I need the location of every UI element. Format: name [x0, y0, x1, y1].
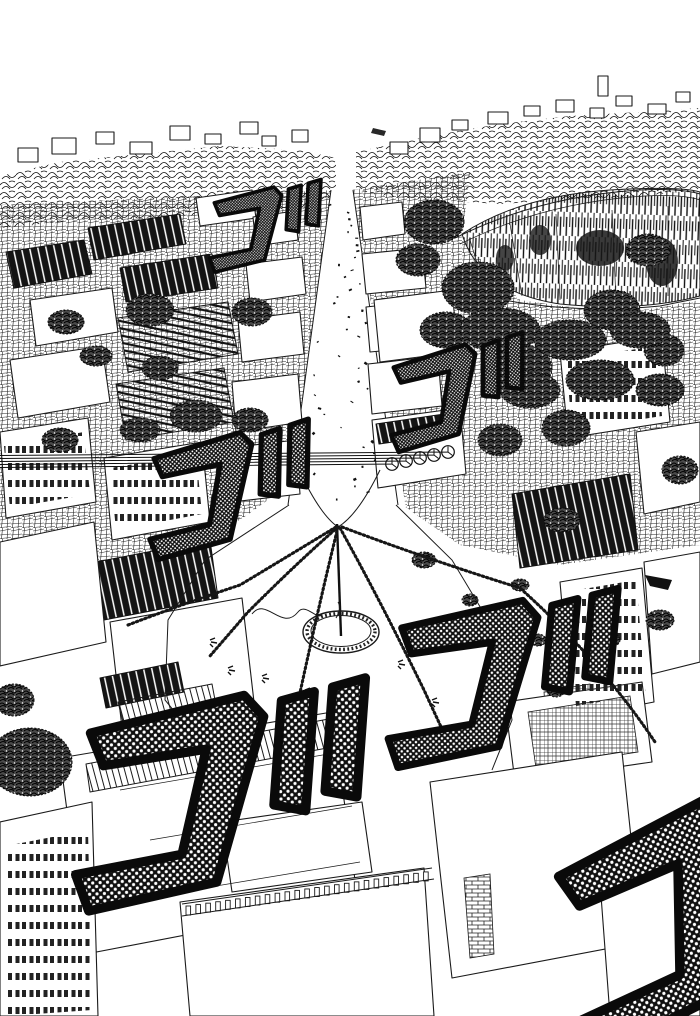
distant-building: [130, 142, 152, 154]
tree: [42, 428, 78, 452]
balustrade-post: [186, 906, 191, 915]
balustrade-post: [354, 882, 359, 891]
distant-building: [524, 106, 540, 116]
tree: [396, 244, 440, 276]
balustrade-post: [364, 880, 369, 889]
balustrade-post: [285, 892, 290, 901]
tree: [626, 234, 670, 266]
building: [6, 830, 92, 1016]
building: [0, 522, 106, 666]
distant-building: [648, 104, 666, 114]
distant-building: [598, 76, 608, 96]
distant-building: [205, 134, 221, 144]
tree: [544, 508, 580, 532]
balustrade-post: [335, 885, 340, 894]
building: [360, 202, 405, 240]
tree: [646, 610, 674, 630]
balustrade-post: [255, 896, 260, 905]
balustrade-post: [315, 888, 320, 897]
distant-building: [18, 148, 38, 162]
tree: [478, 424, 522, 456]
balustrade-post: [325, 886, 330, 895]
tree: [662, 456, 698, 484]
distant-building: [590, 108, 604, 118]
tree: [120, 418, 160, 442]
tree: [232, 408, 268, 432]
distant-building: [420, 128, 440, 142]
distant-building: [616, 96, 632, 106]
tree: [232, 298, 272, 326]
tree: [566, 360, 634, 400]
distant-building: [240, 122, 258, 134]
tree: [48, 310, 84, 334]
balustrade-post: [236, 899, 241, 908]
distant-building: [452, 120, 468, 130]
balustrade-post: [344, 883, 349, 892]
tree: [442, 262, 514, 314]
tree: [542, 410, 590, 446]
balustrade-post: [196, 905, 201, 914]
balustrade-post: [374, 879, 379, 888]
balustrade-post: [226, 900, 231, 909]
tree: [170, 400, 222, 432]
tree: [80, 346, 112, 366]
balustrade-post: [295, 890, 300, 899]
city-aerial-scene: Black-and-white manga panel: bird's-eye …: [0, 0, 700, 1016]
balustrade-post: [275, 893, 280, 902]
distant-building: [262, 136, 276, 146]
tree: [142, 356, 178, 380]
distant-building: [390, 142, 408, 154]
distant-building: [292, 130, 308, 142]
tree: [636, 374, 684, 406]
tree: [404, 200, 464, 244]
distant-building: [96, 132, 114, 144]
balustrade-post: [216, 902, 221, 911]
manga-panel: Black-and-white manga panel: bird's-eye …: [0, 0, 700, 1016]
balustrade-post: [245, 897, 250, 906]
distant-building: [556, 100, 574, 112]
tree: [126, 294, 174, 326]
tree: [534, 320, 606, 360]
distant-building: [170, 126, 190, 140]
distant-building: [488, 112, 508, 124]
balustrade-post: [384, 878, 389, 887]
balustrade-post: [206, 903, 211, 912]
tree: [610, 312, 670, 348]
distant-building: [676, 92, 690, 102]
balustrade-post: [305, 889, 310, 898]
balustrade-post: [265, 895, 270, 904]
distant-building: [52, 138, 76, 154]
